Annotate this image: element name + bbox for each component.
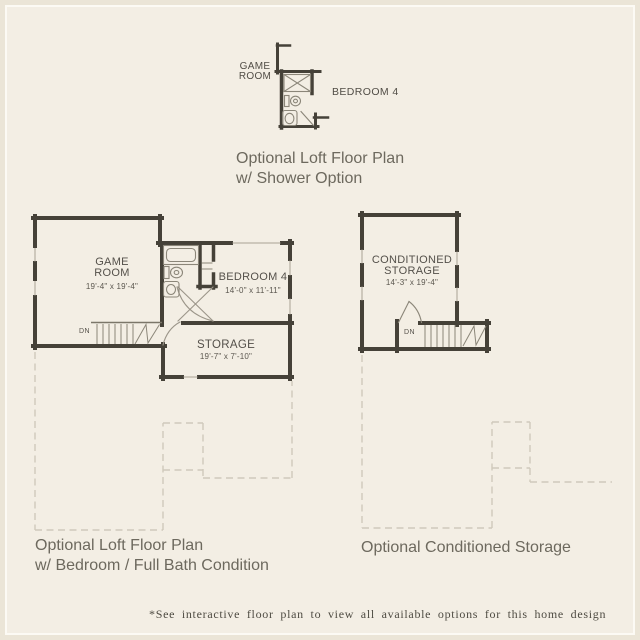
- loft-plan-stairs: [91, 323, 162, 345]
- shower-plan-game-room-label: GAME ROOM: [236, 62, 274, 81]
- loft-plan-caption-line1: Optional Loft Floor Plan: [35, 536, 269, 556]
- shower-plan-caption: Optional Loft Floor Plan w/ Shower Optio…: [236, 149, 404, 189]
- sink-icon: [164, 282, 180, 298]
- shower-plan-caption-line2: w/ Shower Option: [236, 169, 404, 189]
- conditioned-storage-dims: 14'-3" x 19'-4": [355, 278, 469, 287]
- bedroom4-label: BEDROOM 4 14'-0" x 11'-11": [206, 272, 300, 295]
- game-room-name-line2: ROOM: [77, 268, 147, 279]
- loft-plan-dn-label: DN: [79, 328, 90, 335]
- storage-plan-stairs: [425, 325, 486, 347]
- toilet-icon: [164, 267, 183, 279]
- storage-plan-dn-label: DN: [404, 329, 415, 336]
- storage-plan-caption: Optional Conditioned Storage: [361, 538, 571, 558]
- conditioned-storage-label: CONDITIONED STORAGE 14'-3" x 19'-4": [355, 255, 469, 287]
- shower-plan-bedroom-label: BEDROOM 4: [332, 86, 399, 98]
- toilet-icon: [285, 96, 301, 107]
- bedroom4-name: BEDROOM 4: [206, 272, 300, 283]
- tub-icon: [164, 246, 199, 265]
- door-leaf: [301, 112, 314, 126]
- storage-dims: 19'-7" x 7'-10": [179, 352, 273, 361]
- door-swing: [399, 302, 422, 323]
- shower-plan-caption-line1: Optional Loft Floor Plan: [236, 149, 404, 169]
- loft-plan-caption-line2: w/ Bedroom / Full Bath Condition: [35, 556, 269, 576]
- lower-level-outline-right: [362, 355, 612, 528]
- storage-name: STORAGE: [179, 340, 273, 351]
- conditioned-storage-line2: STORAGE: [355, 266, 469, 277]
- game-room-dims: 19'-4" x 19'-4": [77, 282, 147, 291]
- door-swings: [163, 287, 213, 345]
- loft-plan-caption: Optional Loft Floor Plan w/ Bedroom / Fu…: [35, 536, 269, 576]
- shower-icon: [284, 75, 311, 92]
- game-room-label: GAME ROOM 19'-4" x 19'-4": [77, 257, 147, 291]
- sink-icon: [283, 111, 298, 126]
- storage-label: STORAGE 19'-7" x 7'-10": [179, 340, 273, 361]
- shower-option-plan-drawing: [276, 44, 328, 128]
- floor-plan-sheet: GAME ROOM BEDROOM 4 Optional Loft Floor …: [0, 0, 640, 640]
- game-room-label-line2: ROOM: [236, 72, 274, 82]
- bedroom4-dims: 14'-0" x 11'-11": [206, 286, 300, 295]
- footnote: *See interactive floor plan to view all …: [149, 607, 606, 622]
